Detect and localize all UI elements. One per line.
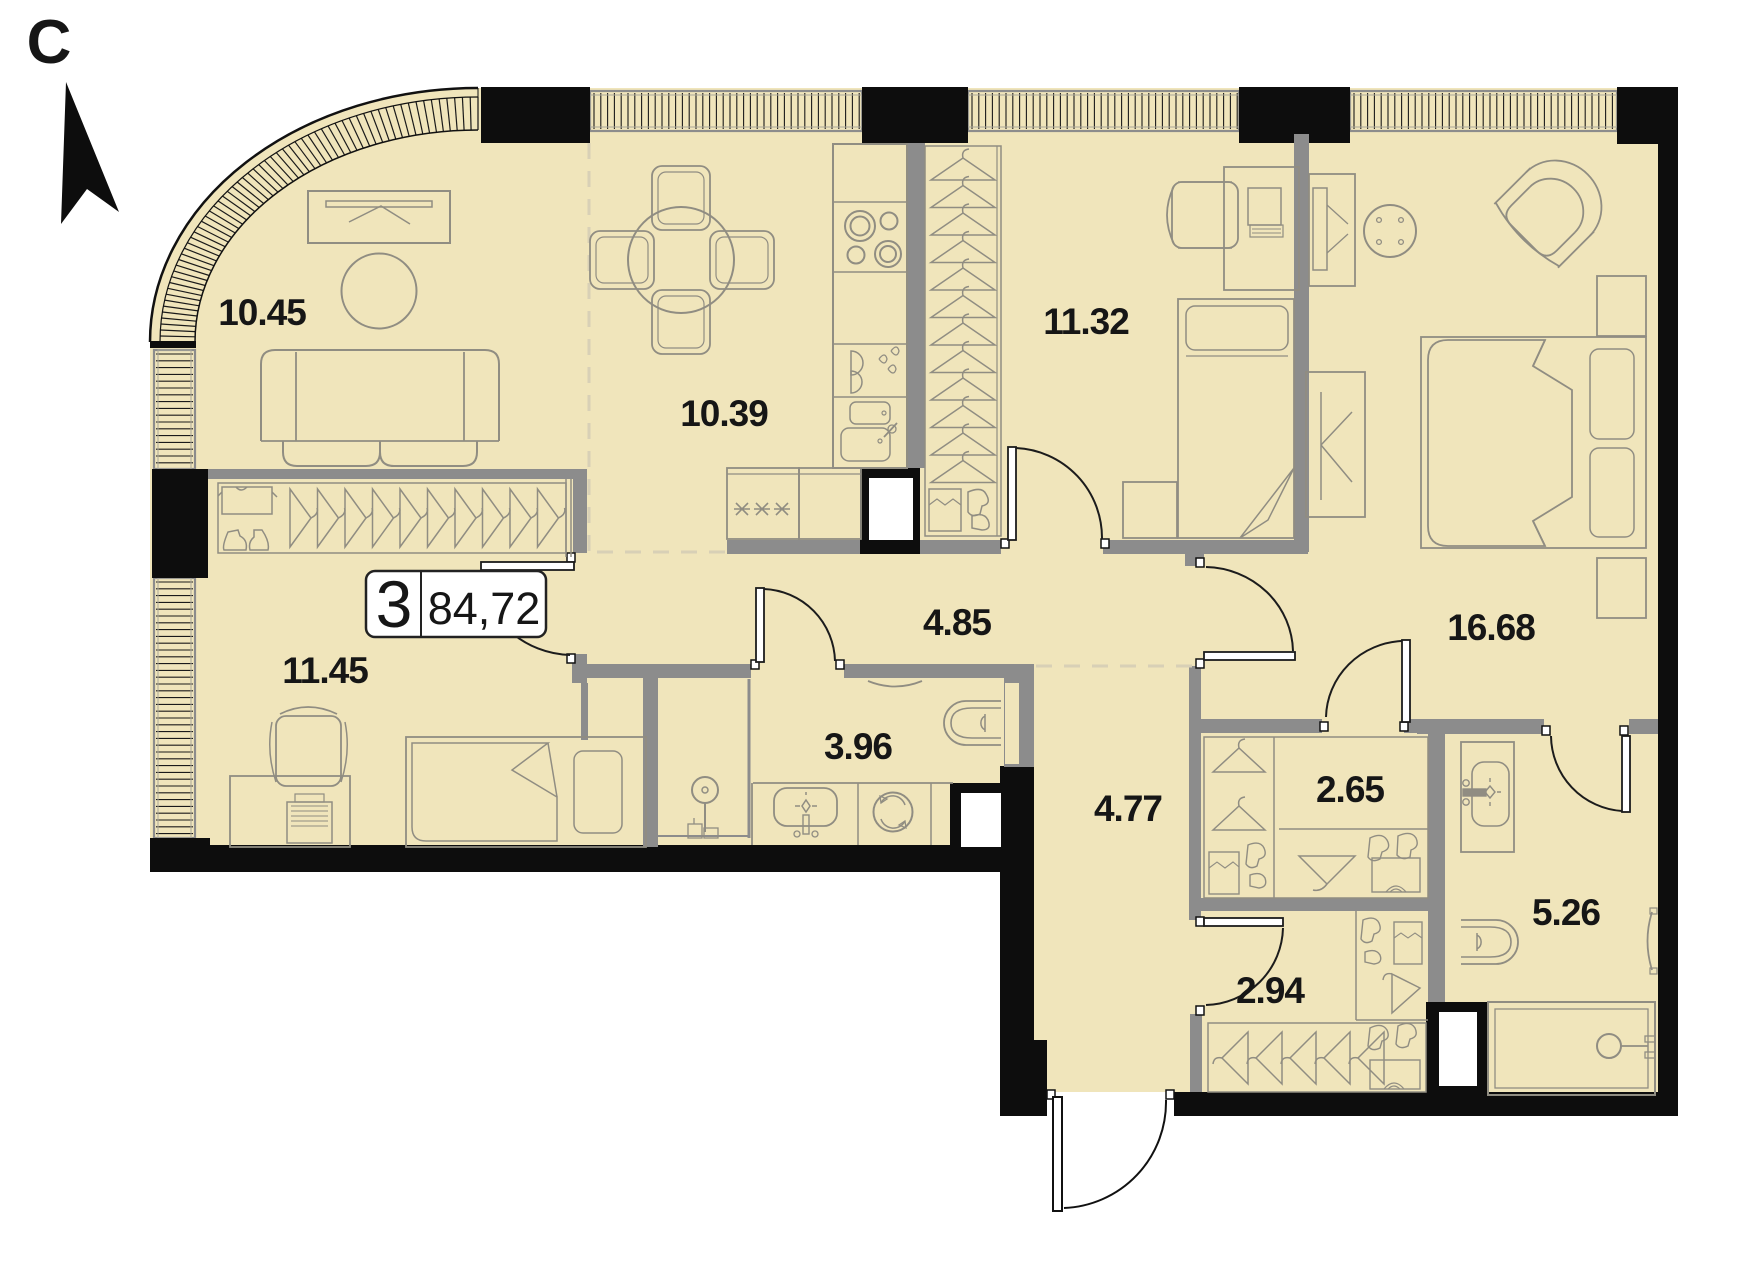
svg-text:16.68: 16.68 <box>1447 607 1535 648</box>
svg-text:5.26: 5.26 <box>1532 892 1600 933</box>
svg-text:2.65: 2.65 <box>1316 769 1384 810</box>
svg-text:84,72: 84,72 <box>428 583 541 634</box>
svg-text:2.94: 2.94 <box>1236 970 1305 1011</box>
svg-text:С: С <box>27 8 72 77</box>
svg-text:3: 3 <box>376 567 413 641</box>
svg-text:11.32: 11.32 <box>1043 301 1129 342</box>
svg-text:4.85: 4.85 <box>923 602 991 643</box>
svg-text:3.96: 3.96 <box>824 726 892 767</box>
svg-text:10.39: 10.39 <box>680 393 768 434</box>
svg-text:10.45: 10.45 <box>218 292 306 333</box>
svg-text:11.45: 11.45 <box>282 650 368 691</box>
svg-text:4.77: 4.77 <box>1094 788 1162 829</box>
